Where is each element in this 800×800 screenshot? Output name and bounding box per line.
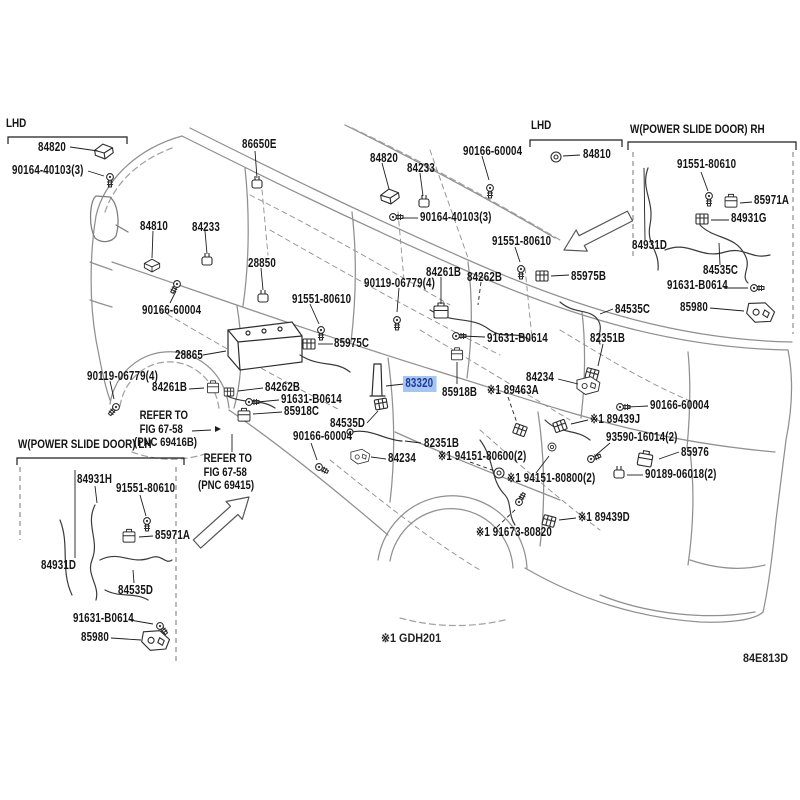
- part-label-90166-60004[interactable]: 90166-60004: [293, 430, 352, 443]
- part-label-89439D[interactable]: ※1 89439D: [578, 511, 630, 524]
- part-label-84931D[interactable]: 84931D: [41, 559, 76, 572]
- group-title-power-slide-door-rh: W(POWER SLIDE DOOR) RH: [630, 125, 765, 137]
- part-label-84234[interactable]: 84234: [388, 452, 416, 465]
- part-label-85971A[interactable]: 85971A: [754, 194, 789, 207]
- part-label-85918B[interactable]: 85918B: [442, 386, 477, 399]
- part-label-94151-80600[interactable]: ※1 94151-80600(2): [438, 450, 526, 463]
- part-label-84233[interactable]: 84233: [192, 221, 220, 234]
- refer-note-line: REFER TO: [140, 409, 197, 423]
- part-label-84535C[interactable]: 84535C: [615, 303, 650, 316]
- part-label-84931D[interactable]: 84931D: [632, 239, 667, 252]
- diagram-code: 84E813D: [743, 652, 788, 664]
- arrow-to-lhd-detail: [564, 211, 633, 251]
- part-label-91673-80820[interactable]: ※1 91673-80820: [476, 526, 552, 539]
- part-label-84262B[interactable]: 84262B: [467, 271, 502, 284]
- part-label-90166-60004[interactable]: 90166-60004: [142, 304, 201, 317]
- part-label-85918C[interactable]: 85918C: [284, 405, 319, 418]
- part-label-91631-B0614[interactable]: 91631-B0614: [487, 332, 548, 345]
- part-label-84810[interactable]: 84810: [140, 220, 168, 233]
- refer-note-line: FIG 67-58: [204, 466, 254, 480]
- part-label-90164-40103[interactable]: 90164-40103(3): [12, 164, 84, 177]
- part-label-84233[interactable]: 84233: [407, 162, 435, 175]
- part-label-91551-80610[interactable]: 91551-80610: [292, 293, 351, 306]
- group-title-lhd-left: LHD: [6, 119, 26, 131]
- part-label-84931H[interactable]: 84931H: [77, 473, 112, 486]
- refer-note-line: REFER TO: [204, 452, 254, 466]
- part-label-84820[interactable]: 84820: [38, 141, 66, 154]
- part-label-84535C[interactable]: 84535C: [703, 264, 738, 277]
- part-label-85975B[interactable]: 85975B: [571, 270, 606, 283]
- part-label-90189-06018[interactable]: 90189-06018(2): [645, 468, 717, 481]
- part-label-89463A[interactable]: ※1 89463A: [487, 384, 539, 397]
- footnote-model-code: ※1 GDH201: [381, 632, 441, 644]
- part-label-91551-80610[interactable]: 91551-80610: [116, 482, 175, 495]
- part-label-90119-06779[interactable]: 90119-06779(4): [87, 370, 158, 383]
- part-label-84931G[interactable]: 84931G: [731, 212, 767, 225]
- part-label-90164-40103[interactable]: 90164-40103(3): [420, 211, 492, 224]
- part-label-85980[interactable]: 85980: [81, 631, 109, 644]
- part-label-91551-80610[interactable]: 91551-80610: [677, 158, 736, 171]
- part-label-82351B[interactable]: 82351B: [590, 332, 625, 345]
- part-label-84261B[interactable]: 84261B: [426, 266, 461, 279]
- part-label-85980[interactable]: 85980: [680, 301, 708, 314]
- part-label-90119-06779[interactable]: 90119-06779(4): [364, 277, 435, 290]
- part-label-85975C[interactable]: 85975C: [334, 337, 369, 350]
- part-label-84234[interactable]: 84234: [526, 371, 554, 384]
- part-label-94151-80800[interactable]: ※1 94151-80800(2): [507, 472, 595, 485]
- part-label-90166-60004[interactable]: 90166-60004: [463, 145, 522, 158]
- refer-note-line: (PNC 69416B): [134, 436, 197, 450]
- refer-note-line: (PNC 69415): [198, 479, 254, 493]
- part-label-89439J[interactable]: ※1 89439J: [590, 413, 640, 426]
- part-label-84535D[interactable]: 84535D: [118, 584, 153, 597]
- part-label-84261B[interactable]: 84261B: [152, 381, 187, 394]
- part-label-90166-60004[interactable]: 90166-60004: [650, 399, 709, 412]
- part-label-28850[interactable]: 28850: [248, 257, 276, 270]
- part-label-84810[interactable]: 84810: [583, 148, 611, 161]
- part-label-91631-B0614[interactable]: 91631-B0614: [667, 279, 728, 292]
- part-label-84820[interactable]: 84820: [370, 152, 398, 165]
- part-label-85971A[interactable]: 85971A: [155, 529, 190, 542]
- part-label-93590-16014[interactable]: 93590-16014(2): [606, 431, 678, 444]
- part-label-91631-B0614[interactable]: 91631-B0614: [73, 612, 134, 625]
- vehicle-line-art: [90, 125, 792, 626]
- part-label-83320-selected[interactable]: 83320: [403, 376, 436, 392]
- arrow-to-lh-detail: [193, 497, 249, 548]
- group-title-lhd-mid: LHD: [531, 121, 551, 133]
- refer-note-2: REFER TO FIG 67-58 (PNC 69415): [198, 452, 254, 493]
- group-title-power-slide-door-lh: W(POWER SLIDE DOOR) LH: [18, 440, 152, 452]
- refer-note-1: REFER TO FIG 67-58 (PNC 69416B): [134, 409, 197, 450]
- parts-diagram-canvas: LHD LHD W(POWER SLIDE DOOR) RH W(POWER S…: [0, 0, 800, 800]
- part-label-86650E[interactable]: 86650E: [242, 138, 277, 151]
- refer-note-line: FIG 67-58: [140, 423, 197, 437]
- part-label-28865[interactable]: 28865: [175, 349, 203, 362]
- part-label-85976[interactable]: 85976: [681, 446, 709, 459]
- part-label-91551-80610[interactable]: 91551-80610: [492, 235, 551, 248]
